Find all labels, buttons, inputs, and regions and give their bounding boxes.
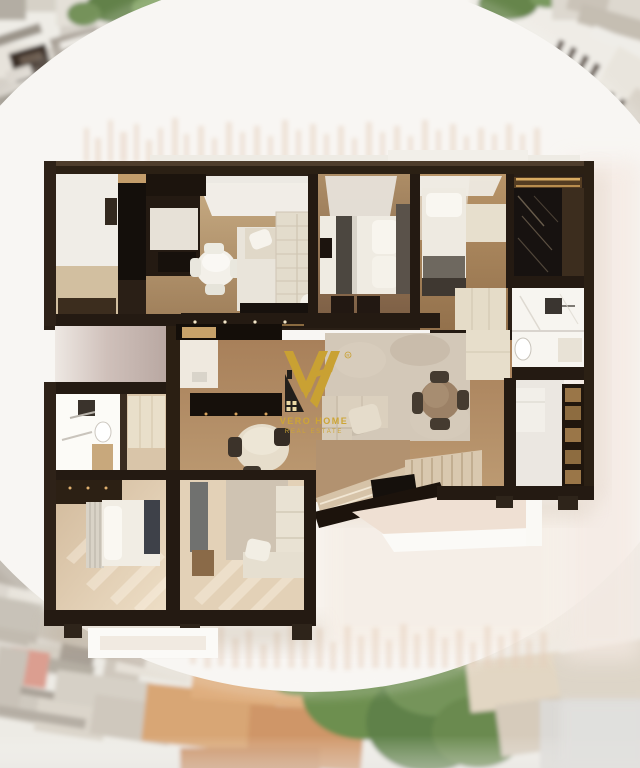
svg-text:VERO HOME: VERO HOME — [280, 416, 349, 426]
svg-text:REAL ESTATE: REAL ESTATE — [285, 429, 343, 435]
